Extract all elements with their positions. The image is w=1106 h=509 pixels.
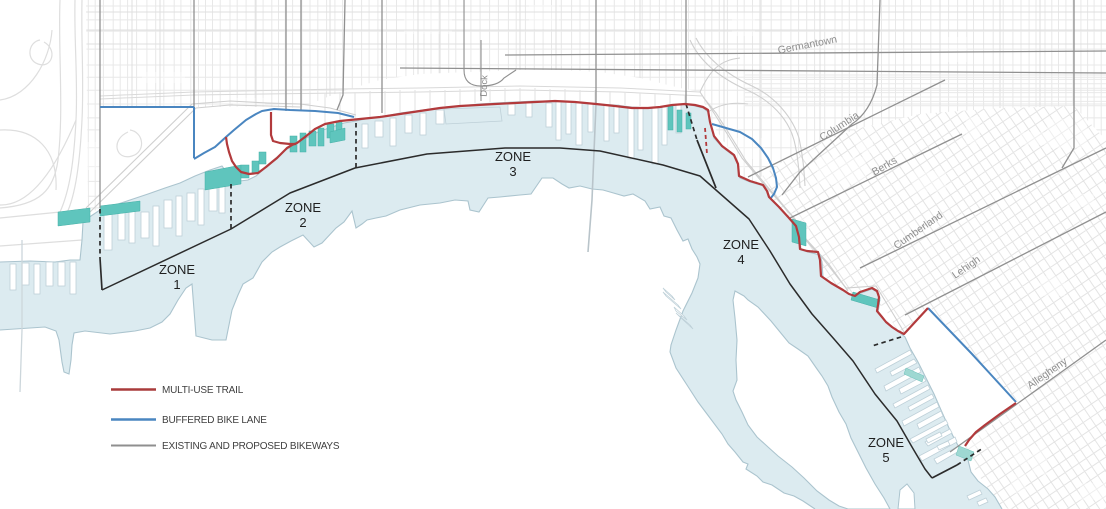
svg-text:4: 4 bbox=[737, 252, 744, 267]
svg-text:ZONE: ZONE bbox=[159, 262, 195, 277]
svg-text:5: 5 bbox=[882, 450, 889, 465]
svg-text:Dock: Dock bbox=[479, 75, 491, 97]
svg-text:3: 3 bbox=[509, 164, 516, 179]
svg-text:MULTI-USE TRAIL: MULTI-USE TRAIL bbox=[162, 385, 244, 396]
svg-text:EXISTING AND PROPOSED BIKEWAYS: EXISTING AND PROPOSED BIKEWAYS bbox=[162, 441, 340, 452]
svg-text:1: 1 bbox=[173, 277, 180, 292]
svg-text:ZONE: ZONE bbox=[285, 200, 321, 215]
svg-text:BUFFERED BIKE LANE: BUFFERED BIKE LANE bbox=[162, 415, 267, 426]
svg-text:ZONE: ZONE bbox=[495, 149, 531, 164]
svg-text:2: 2 bbox=[299, 215, 306, 230]
svg-text:ZONE: ZONE bbox=[723, 237, 759, 252]
svg-text:ZONE: ZONE bbox=[868, 435, 904, 450]
